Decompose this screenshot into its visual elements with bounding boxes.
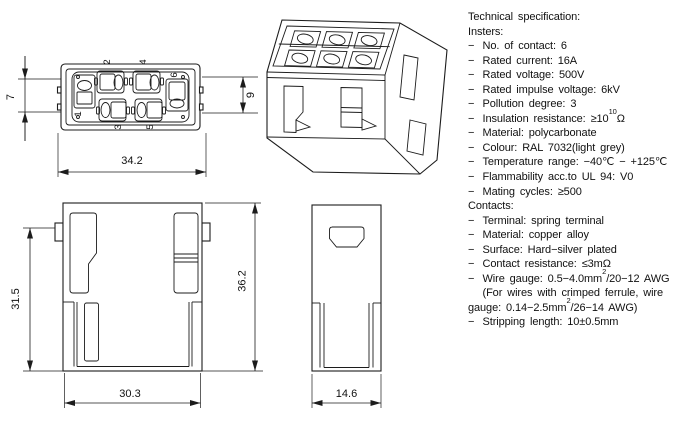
dim-label-top-depth: 7 [5, 94, 17, 100]
spec-line: −Material: polycarbonate [468, 126, 682, 141]
bullet-dash: − [468, 54, 483, 69]
spec-line: −Wire gauge: 0.5−4.0mm2/20−12 AWG [468, 272, 682, 287]
spec-title: Technical specification: [468, 10, 682, 25]
spec-line: −Material: copper alloy [468, 228, 682, 243]
bullet-dash: − [468, 185, 483, 200]
bullet-dash: − [468, 257, 483, 272]
bullet-dash: − [468, 68, 483, 83]
spec-line: −Temperature range: −40℃ − +125℃ [468, 155, 682, 170]
bullet-dash: − [468, 170, 483, 185]
bullet-dash: − [468, 243, 483, 258]
contact-number-5: 5 [145, 124, 156, 129]
bullet-dash: − [468, 315, 483, 330]
spec-section-contacts: Contacts: [468, 199, 682, 214]
bullet-dash: − [468, 39, 483, 54]
bullet-dash: − [468, 141, 483, 156]
dim-label-front-height-inner: 31.5 [10, 288, 22, 309]
spec-line: −Rated impulse voltage: 6kV [468, 83, 682, 98]
spec-line: −Insulation resistance: ≥1010Ω [468, 112, 682, 127]
bullet-dash: − [468, 97, 483, 112]
contact-number-4: 4 [138, 59, 149, 64]
dim-label-top-width: 34.2 [121, 155, 142, 167]
spec-line-continuation: gauge: 0.14−2.5mm2/26−14 AWG) [468, 301, 682, 316]
side-view [312, 205, 381, 371]
bullet-dash: − [468, 112, 483, 127]
left-latch-bump [58, 104, 62, 110]
bullet-dash: − [468, 155, 483, 170]
top-view: 1 2 3 4 5 6 [58, 59, 204, 130]
dim-label-side-width: 14.6 [336, 388, 357, 400]
front-left-tab [55, 223, 63, 241]
spec-line: −Terminal: spring terminal [468, 214, 682, 229]
spec-line: −Mating cycles: ≥500 [468, 185, 682, 200]
engineering-drawing: .o{fill:#fff;stroke:#1c1c1c;stroke-width… [0, 0, 470, 422]
spec-line-continuation: (For wires with crimped ferrule, wire [468, 286, 682, 301]
contact-number-1: 1 [73, 111, 84, 116]
spec-line: −Colour: RAL 7032(light grey) [468, 141, 682, 156]
spec-line: −Pollution degree: 3 [468, 97, 682, 112]
right-latch-bump [200, 104, 204, 110]
dim-label-right-depth: 9 [245, 92, 257, 98]
right-latch-bump [200, 87, 204, 93]
spec-panel: Technical specification: Insters: −No. o… [468, 10, 682, 330]
spec-line: −Rated voltage: 500V [468, 68, 682, 83]
spec-line: −Contact resistance: ≤3mΩ [468, 257, 682, 272]
spec-section-inserts: Insters: [468, 25, 682, 40]
isometric-view [267, 20, 447, 174]
contact-number-2: 2 [102, 59, 113, 64]
front-view [55, 203, 210, 371]
bullet-dash: − [468, 214, 483, 229]
dim-label-front-width: 30.3 [119, 388, 140, 400]
dim-label-front-height-total: 36.2 [237, 270, 249, 291]
spec-line: −Flammability acc.to UL 94: V0 [468, 170, 682, 185]
front-right-tab [202, 223, 210, 241]
contact-number-3: 3 [113, 124, 124, 129]
spec-line: −Stripping length: 10±0.5mm [468, 315, 682, 330]
side-view-dimensions: 14.6 [312, 374, 381, 408]
bullet-dash: − [468, 126, 483, 141]
contact-number-6: 6 [169, 72, 180, 77]
bullet-dash: − [468, 83, 483, 98]
bullet-dash: − [468, 228, 483, 243]
left-latch-bump [58, 87, 62, 93]
connector-datasheet-page: .o{fill:#fff;stroke:#1c1c1c;stroke-width… [0, 0, 684, 422]
spec-line: −Rated current: 16A [468, 54, 682, 69]
bullet-dash: − [468, 272, 483, 287]
spec-line: −No. of contact: 6 [468, 39, 682, 54]
spec-line: −Surface: Hard−silver plated [468, 243, 682, 258]
